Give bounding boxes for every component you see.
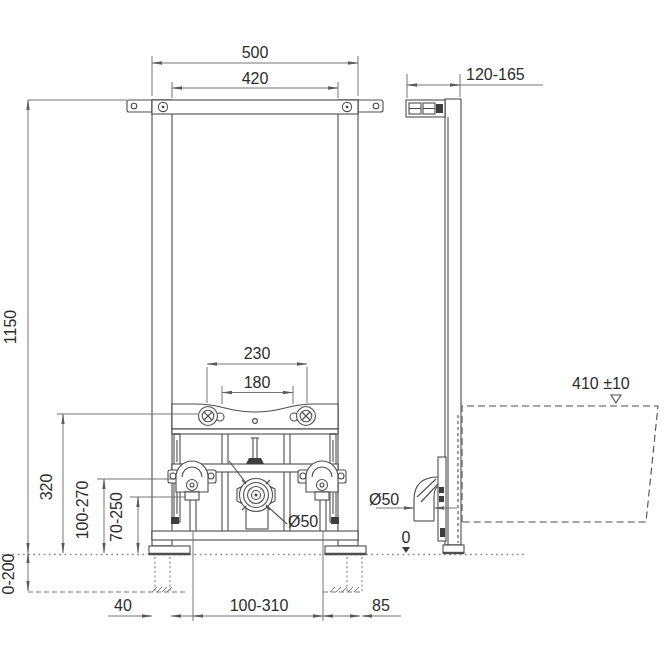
floor-reference-lines [2,555,526,593]
dim-wall-distance: 120-165 [466,66,525,83]
side-wall-bracket [406,100,445,117]
dim-drain-diameter-side: Ø50 [369,491,399,508]
dim-frame-width: 500 [242,44,269,61]
bidet-frame-drawing: 500 420 120-165 1150 0-200 320 100-270 7… [0,0,665,665]
top-rail [152,100,358,114]
dim-drain-diameter-front: Ø50 [288,513,318,530]
dimension-labels: 500 420 120-165 1150 0-200 320 100-270 7… [0,44,630,614]
dim-drain-height-range: 70-250 [108,492,125,542]
right-fixing-bolt [297,407,316,426]
label-floor-level: 0 [402,529,411,546]
dim-crossbar-height: 320 [38,474,55,501]
dim-foot-width: 40 [114,597,132,614]
left-fixing-bolt [199,407,218,426]
hatch-marks [152,587,359,592]
bottom-rail [152,531,358,540]
dim-anchor-width: 420 [242,70,269,87]
dim-fixing-spacing: 180 [244,374,271,391]
bowl-outline [462,406,658,522]
drain-elbow-side [414,477,438,521]
side-frame-profile [445,99,461,545]
level-marker-icon [611,395,621,403]
side-view [402,99,658,553]
dim-fixture-level: 410 ±10 [572,375,630,392]
dim-supply-height-range: 100-270 [74,481,91,540]
dim-side-clearance: 85 [372,597,390,614]
dim-bolt-spacing: 230 [244,345,271,362]
dim-foot-height-range: 0-200 [0,553,17,594]
front-view [127,100,383,554]
technical-drawing-canvas: 500 420 120-165 1150 0-200 320 100-270 7… [0,0,665,665]
dim-frame-height: 1150 [2,310,19,345]
side-mounting-plate [438,457,446,541]
floor-marker-icon [402,547,410,553]
dim-drain-lateral-range: 100-310 [230,597,289,614]
threaded-rod [246,438,264,464]
